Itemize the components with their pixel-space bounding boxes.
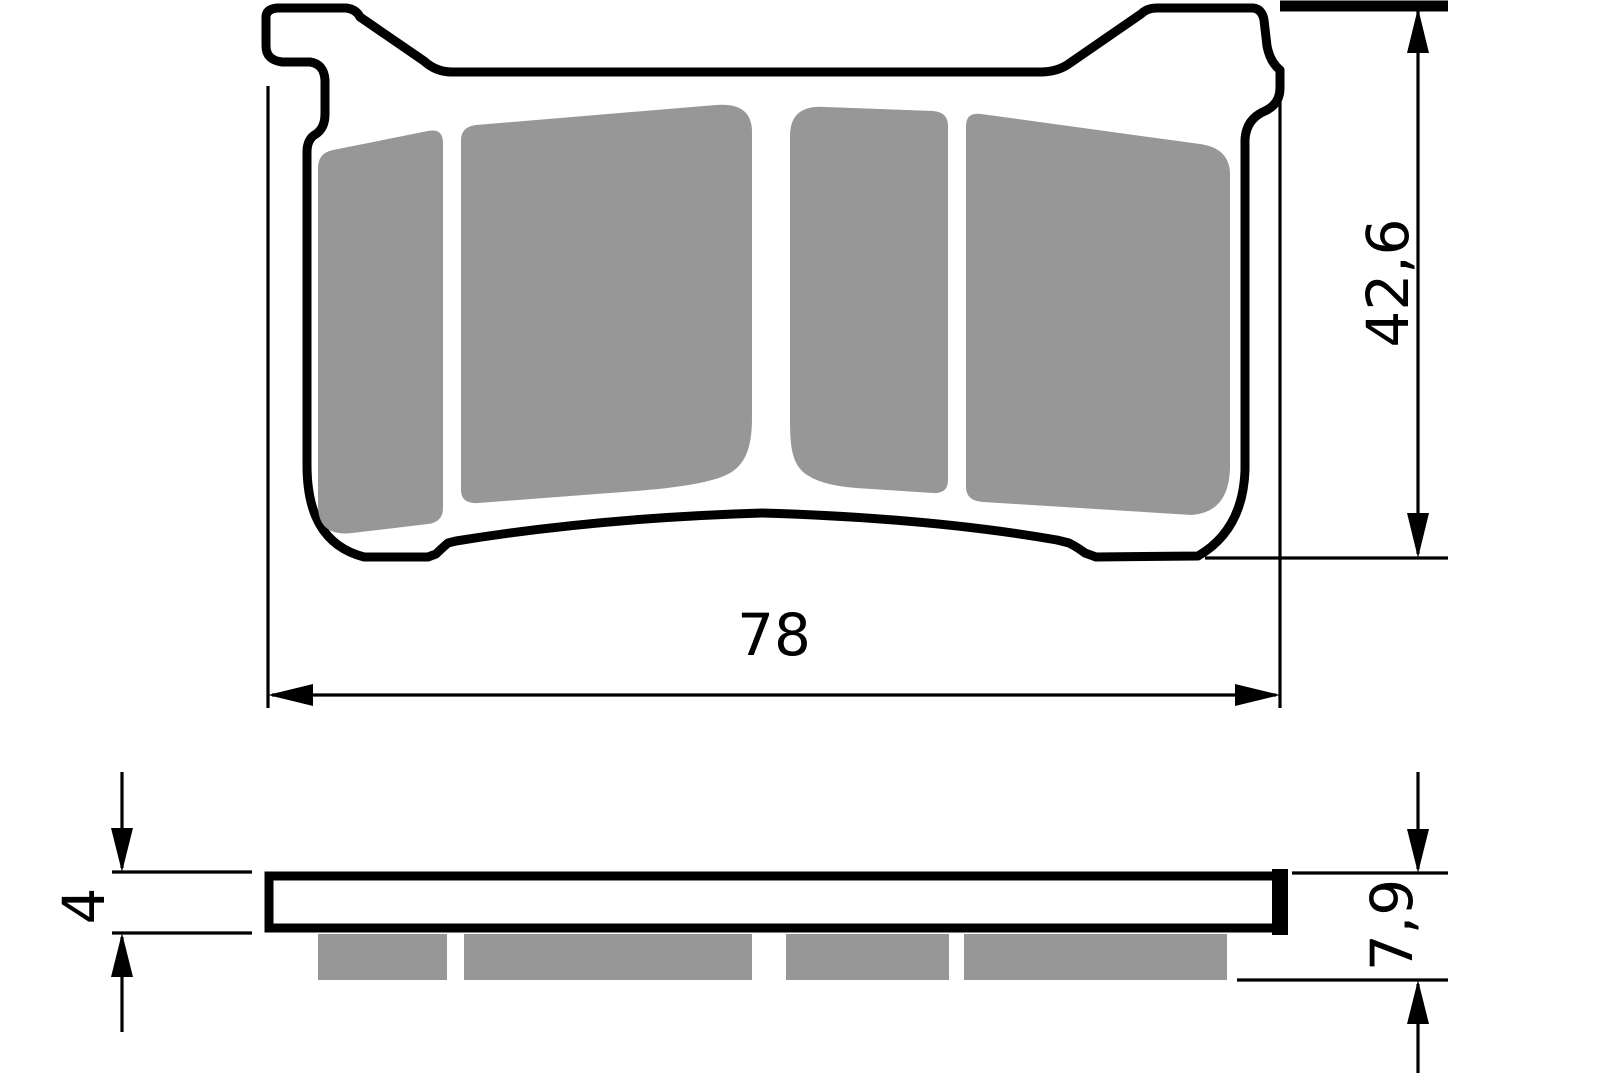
width-dimension-label: 78 <box>737 601 811 669</box>
brake-pad-drawing: 78 42,6 4 <box>0 0 1600 1073</box>
friction-segment-2 <box>461 105 752 503</box>
arrowhead-left <box>268 684 313 706</box>
arrowhead-up <box>1407 980 1429 1024</box>
arrowhead-down <box>111 828 133 872</box>
friction-block-4 <box>964 934 1227 980</box>
arrowhead-top <box>1407 8 1429 53</box>
friction-block-3 <box>786 934 949 980</box>
arrowhead-down <box>1407 829 1429 873</box>
top-view: 78 42,6 <box>266 6 1448 708</box>
friction-block-2 <box>464 934 752 980</box>
plate-end-cap <box>1272 869 1288 935</box>
arrowhead-up <box>111 933 133 977</box>
arrowhead-right <box>1235 684 1280 706</box>
height-dimension-label: 42,6 <box>1354 218 1422 347</box>
backing-plate-side <box>269 876 1281 928</box>
friction-segment-4 <box>966 114 1230 515</box>
total-thickness-label: 7,9 <box>1358 879 1426 971</box>
technical-drawing-canvas: 78 42,6 4 <box>0 0 1600 1073</box>
side-view: 4 7,9 <box>50 772 1448 1073</box>
backplate-thickness-label: 4 <box>50 888 118 925</box>
friction-segment-3 <box>790 107 948 493</box>
friction-material-side-view <box>318 934 1227 980</box>
dimension-backplate-thickness: 4 <box>50 772 252 1032</box>
friction-block-1 <box>318 934 447 980</box>
friction-segment-1 <box>318 131 443 534</box>
arrowhead-bottom <box>1407 513 1429 558</box>
